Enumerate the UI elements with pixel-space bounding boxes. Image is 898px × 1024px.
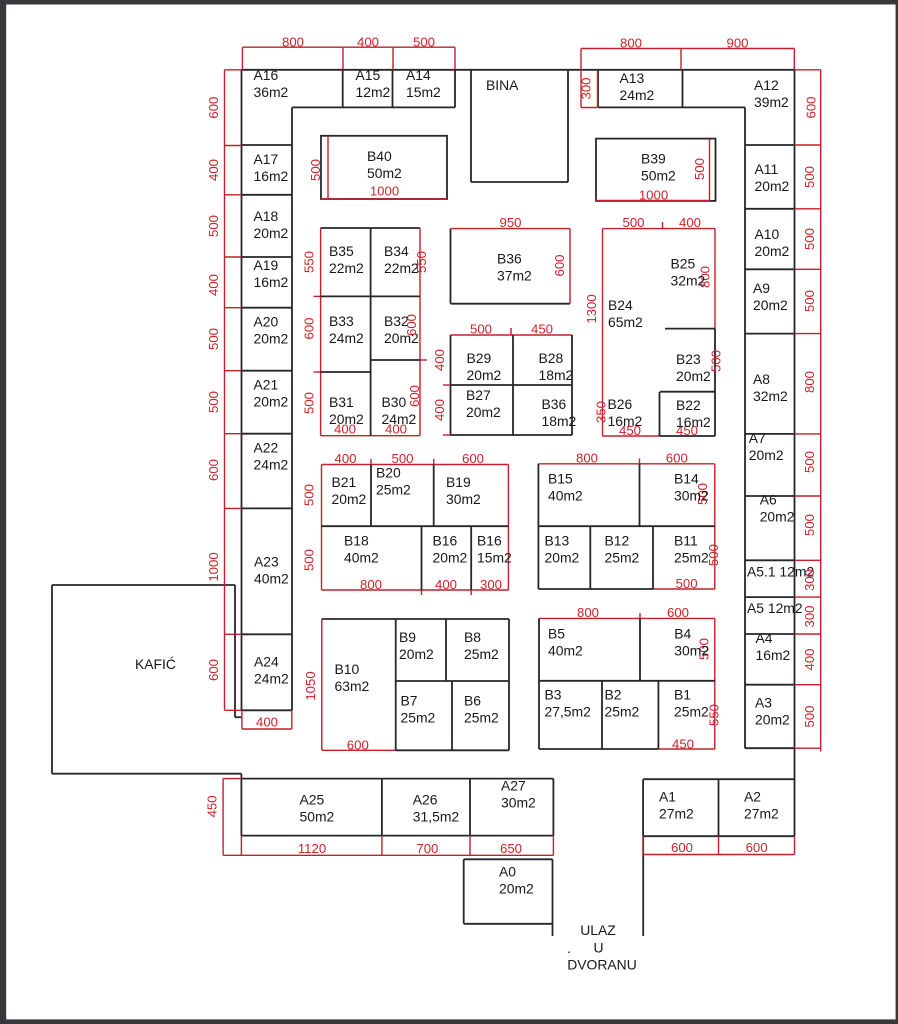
svg-text:32m2: 32m2 <box>753 388 788 404</box>
svg-text:B4: B4 <box>674 626 691 642</box>
svg-text:18m2: 18m2 <box>542 413 577 429</box>
svg-text:400: 400 <box>385 422 407 437</box>
svg-text:25m2: 25m2 <box>674 704 709 720</box>
svg-text:20m2: 20m2 <box>332 491 367 507</box>
svg-text:600: 600 <box>404 314 419 336</box>
svg-text:A18: A18 <box>254 208 279 224</box>
svg-text:25m2: 25m2 <box>605 550 640 566</box>
svg-text:400: 400 <box>435 577 457 592</box>
svg-text:40m2: 40m2 <box>254 571 289 587</box>
svg-text:B36: B36 <box>497 251 522 267</box>
svg-text:500: 500 <box>692 158 707 180</box>
svg-text:A2: A2 <box>744 788 761 804</box>
svg-text:400: 400 <box>679 215 701 230</box>
svg-text:550: 550 <box>707 704 722 726</box>
svg-text:500: 500 <box>308 159 323 181</box>
svg-text:B8: B8 <box>464 629 481 645</box>
svg-text:20m2: 20m2 <box>499 881 534 897</box>
svg-text:A26: A26 <box>413 792 438 808</box>
svg-text:A5 12m2: A5 12m2 <box>747 600 803 616</box>
svg-text:B26: B26 <box>608 396 633 412</box>
svg-text:B10: B10 <box>335 661 360 677</box>
svg-text:400: 400 <box>357 34 379 49</box>
svg-text:350: 350 <box>594 401 609 423</box>
svg-text:12m2: 12m2 <box>356 84 391 100</box>
svg-text:400: 400 <box>432 349 447 371</box>
svg-text:B35: B35 <box>329 243 354 259</box>
svg-text:15m2: 15m2 <box>406 84 441 100</box>
svg-text:20m2: 20m2 <box>676 368 711 384</box>
svg-text:500: 500 <box>413 34 435 49</box>
svg-text:400: 400 <box>206 159 221 181</box>
svg-text:20m2: 20m2 <box>433 550 468 566</box>
svg-text:39m2: 39m2 <box>754 94 789 110</box>
svg-text:600: 600 <box>671 840 693 855</box>
svg-text:500: 500 <box>206 328 221 350</box>
svg-text:B27: B27 <box>466 387 491 403</box>
svg-text:A11: A11 <box>755 161 779 177</box>
svg-text:A17: A17 <box>254 151 279 167</box>
svg-text:600: 600 <box>552 254 567 276</box>
svg-text:500: 500 <box>302 484 317 506</box>
svg-text:A23: A23 <box>254 554 279 570</box>
svg-text:400: 400 <box>802 648 817 670</box>
svg-text:1120: 1120 <box>298 841 326 856</box>
svg-text:B1: B1 <box>674 687 691 703</box>
svg-text:A20: A20 <box>254 314 279 330</box>
svg-text:550: 550 <box>414 251 429 273</box>
svg-text:20m2: 20m2 <box>760 509 795 525</box>
svg-text:.: . <box>567 940 571 956</box>
svg-text:16m2: 16m2 <box>254 168 289 184</box>
svg-text:A9: A9 <box>753 280 770 296</box>
svg-text:600: 600 <box>667 605 689 620</box>
svg-text:B34: B34 <box>384 243 409 259</box>
svg-text:A13: A13 <box>620 70 645 86</box>
svg-text:300: 300 <box>480 577 502 592</box>
svg-text:600: 600 <box>302 317 317 339</box>
svg-text:25m2: 25m2 <box>605 704 640 720</box>
svg-text:36m2: 36m2 <box>254 84 289 100</box>
svg-text:500: 500 <box>802 705 817 727</box>
svg-text:650: 650 <box>500 841 522 856</box>
svg-text:30m2: 30m2 <box>674 643 709 659</box>
svg-text:500: 500 <box>802 514 817 536</box>
svg-text:300: 300 <box>802 605 817 627</box>
svg-text:B40: B40 <box>367 148 392 164</box>
svg-text:1300: 1300 <box>584 294 599 323</box>
svg-text:500: 500 <box>802 290 817 312</box>
svg-text:B12: B12 <box>605 533 630 549</box>
svg-text:A16: A16 <box>254 67 279 83</box>
svg-text:15m2: 15m2 <box>477 550 512 566</box>
svg-text:500: 500 <box>802 228 817 250</box>
svg-text:800: 800 <box>360 577 382 592</box>
svg-text:U: U <box>593 940 603 956</box>
svg-text:A24: A24 <box>254 654 279 670</box>
svg-text:B20: B20 <box>376 465 401 481</box>
svg-text:800: 800 <box>620 36 642 51</box>
svg-text:600: 600 <box>347 738 369 753</box>
svg-text:550: 550 <box>302 251 317 273</box>
svg-text:500: 500 <box>802 166 817 188</box>
svg-text:25m2: 25m2 <box>464 710 499 726</box>
svg-text:400: 400 <box>334 451 356 466</box>
svg-text:KAFIĆ: KAFIĆ <box>135 656 176 672</box>
svg-text:600: 600 <box>746 840 768 855</box>
svg-text:20m2: 20m2 <box>254 394 289 410</box>
svg-text:16m2: 16m2 <box>676 414 711 430</box>
svg-text:B39: B39 <box>641 151 666 167</box>
svg-text:65m2: 65m2 <box>608 314 643 330</box>
svg-text:ULAZ: ULAZ <box>580 922 616 938</box>
svg-text:500: 500 <box>622 215 644 230</box>
svg-text:A19: A19 <box>254 257 279 273</box>
svg-text:A15: A15 <box>356 67 381 83</box>
svg-text:24m2: 24m2 <box>254 671 289 687</box>
svg-text:1000: 1000 <box>639 188 668 203</box>
svg-text:25m2: 25m2 <box>674 550 709 566</box>
svg-text:600: 600 <box>666 451 688 466</box>
svg-text:A25: A25 <box>300 792 325 808</box>
svg-text:20m2: 20m2 <box>254 331 289 347</box>
svg-text:16m2: 16m2 <box>254 274 289 290</box>
svg-text:B33: B33 <box>329 313 354 329</box>
svg-text:B16: B16 <box>433 533 458 549</box>
svg-text:20m2: 20m2 <box>753 297 788 313</box>
svg-text:500: 500 <box>206 391 221 413</box>
svg-text:A8: A8 <box>753 371 770 387</box>
svg-text:1000: 1000 <box>370 184 399 199</box>
svg-text:B14: B14 <box>674 471 699 487</box>
svg-text:25m2: 25m2 <box>464 646 499 662</box>
svg-text:B29: B29 <box>467 350 492 366</box>
svg-text:24m2: 24m2 <box>620 87 655 103</box>
svg-text:600: 600 <box>407 385 422 407</box>
svg-text:A4: A4 <box>756 630 773 646</box>
svg-text:B9: B9 <box>399 629 416 645</box>
svg-text:40m2: 40m2 <box>548 488 583 504</box>
svg-text:20m2: 20m2 <box>749 447 784 463</box>
svg-text:A21: A21 <box>254 377 279 393</box>
svg-text:B31: B31 <box>329 394 354 410</box>
svg-text:A12: A12 <box>754 77 779 93</box>
svg-text:500: 500 <box>302 549 317 571</box>
svg-text:600: 600 <box>804 96 819 118</box>
svg-text:A10: A10 <box>755 226 780 242</box>
svg-text:950: 950 <box>499 215 521 230</box>
svg-text:400: 400 <box>206 274 221 296</box>
svg-text:A7: A7 <box>749 430 766 446</box>
svg-text:1000: 1000 <box>206 552 221 581</box>
svg-text:20m2: 20m2 <box>545 550 580 566</box>
svg-text:800: 800 <box>802 371 817 393</box>
svg-text:B24: B24 <box>608 297 633 313</box>
svg-text:700: 700 <box>416 841 438 856</box>
svg-text:20m2: 20m2 <box>399 646 434 662</box>
svg-text:500: 500 <box>676 576 698 591</box>
svg-text:B3: B3 <box>545 687 562 703</box>
svg-text:25m2: 25m2 <box>401 710 436 726</box>
svg-text:500: 500 <box>302 392 317 414</box>
svg-text:30m2: 30m2 <box>674 488 709 504</box>
svg-text:DVORANU: DVORANU <box>567 957 636 973</box>
svg-text:A14: A14 <box>406 67 431 83</box>
svg-text:32m2: 32m2 <box>671 273 706 289</box>
svg-text:40m2: 40m2 <box>548 643 583 659</box>
svg-text:63m2: 63m2 <box>335 678 370 694</box>
svg-text:300: 300 <box>802 569 817 591</box>
svg-text:50m2: 50m2 <box>641 168 676 184</box>
svg-text:30m2: 30m2 <box>501 795 536 811</box>
svg-text:500: 500 <box>470 322 492 337</box>
svg-text:B19: B19 <box>446 474 471 490</box>
svg-text:450: 450 <box>672 736 694 751</box>
svg-text:B30: B30 <box>382 394 407 410</box>
svg-text:25m2: 25m2 <box>376 482 411 498</box>
svg-text:400: 400 <box>256 715 278 730</box>
svg-text:A3: A3 <box>755 695 772 711</box>
svg-text:300: 300 <box>579 77 594 99</box>
svg-text:B11: B11 <box>674 533 698 549</box>
svg-text:500: 500 <box>206 215 221 237</box>
svg-text:20m2: 20m2 <box>755 712 790 728</box>
svg-text:B25: B25 <box>671 256 696 272</box>
svg-text:450: 450 <box>531 322 553 337</box>
svg-text:A0: A0 <box>499 864 516 880</box>
svg-text:B18: B18 <box>344 533 369 549</box>
svg-text:B28: B28 <box>539 350 564 366</box>
svg-text:27m2: 27m2 <box>659 805 694 821</box>
svg-text:50m2: 50m2 <box>367 165 402 181</box>
svg-text:600: 600 <box>206 659 221 681</box>
svg-text:B13: B13 <box>545 533 570 549</box>
svg-text:B6: B6 <box>464 693 481 709</box>
svg-text:400: 400 <box>334 422 356 437</box>
svg-text:24m2: 24m2 <box>254 457 289 473</box>
svg-text:B7: B7 <box>401 693 418 709</box>
svg-text:A22: A22 <box>254 440 279 456</box>
svg-text:800: 800 <box>576 451 598 466</box>
svg-text:B23: B23 <box>676 351 701 367</box>
svg-text:B2: B2 <box>605 687 622 703</box>
svg-text:18m2: 18m2 <box>539 367 574 383</box>
svg-text:30m2: 30m2 <box>446 491 481 507</box>
svg-text:16m2: 16m2 <box>756 647 791 663</box>
svg-text:A1: A1 <box>659 788 676 804</box>
svg-text:B36: B36 <box>542 396 567 412</box>
svg-text:600: 600 <box>462 451 484 466</box>
svg-text:800: 800 <box>282 34 304 49</box>
svg-text:16m2: 16m2 <box>608 413 643 429</box>
svg-text:B5: B5 <box>548 626 565 642</box>
svg-text:450: 450 <box>205 795 220 817</box>
svg-text:500: 500 <box>802 451 817 473</box>
svg-text:600: 600 <box>206 459 221 481</box>
svg-text:40m2: 40m2 <box>344 550 379 566</box>
svg-text:31,5m2: 31,5m2 <box>413 809 460 825</box>
svg-text:24m2: 24m2 <box>329 330 364 346</box>
svg-text:800: 800 <box>577 605 599 620</box>
svg-text:27,5m2: 27,5m2 <box>545 704 592 720</box>
svg-text:B22: B22 <box>676 397 701 413</box>
svg-text:B21: B21 <box>332 474 357 490</box>
svg-text:20m2: 20m2 <box>755 243 790 259</box>
svg-text:27m2: 27m2 <box>744 805 779 821</box>
svg-text:BINA: BINA <box>486 77 519 93</box>
svg-text:20m2: 20m2 <box>467 367 502 383</box>
svg-text:A6: A6 <box>760 492 777 508</box>
svg-text:20m2: 20m2 <box>755 178 790 194</box>
svg-text:37m2: 37m2 <box>497 268 532 284</box>
svg-text:20m2: 20m2 <box>254 225 289 241</box>
svg-text:A27: A27 <box>501 778 526 794</box>
svg-text:400: 400 <box>432 399 447 421</box>
svg-text:900: 900 <box>726 36 748 51</box>
svg-text:22m2: 22m2 <box>329 260 364 276</box>
svg-text:600: 600 <box>206 97 221 119</box>
svg-text:20m2: 20m2 <box>466 404 501 420</box>
svg-text:50m2: 50m2 <box>300 809 335 825</box>
svg-text:500: 500 <box>709 350 724 372</box>
svg-text:1050: 1050 <box>303 671 318 700</box>
svg-text:B16: B16 <box>477 533 502 549</box>
svg-text:B15: B15 <box>548 471 573 487</box>
